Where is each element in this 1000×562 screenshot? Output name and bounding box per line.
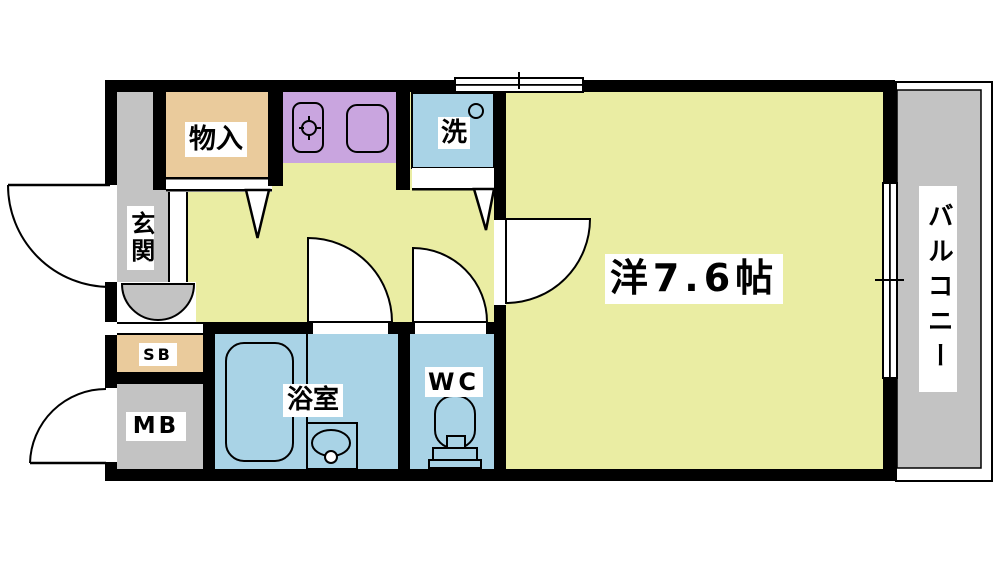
label-storage: 物入 [185, 122, 247, 157]
basin-drain-icon [325, 451, 337, 463]
label-meter-box: MB [126, 412, 186, 441]
label-main-room: 洋7.6帖 [605, 254, 783, 304]
wall [396, 92, 410, 190]
label-shoe-box: SB [139, 343, 177, 366]
wall [153, 92, 166, 190]
meter-box-door-swing [30, 389, 106, 463]
wall [486, 322, 494, 334]
floor-plan-drawing [0, 0, 1000, 562]
front-door-swing [8, 185, 110, 287]
toilet-room [410, 334, 494, 469]
wall [494, 307, 506, 469]
kitchen-counter [283, 92, 396, 163]
wall [494, 92, 506, 218]
wall [203, 334, 215, 469]
wall [388, 322, 415, 334]
wall [117, 372, 203, 384]
label-balcony: バルコニー [919, 186, 957, 392]
toilet-tank-lid [447, 436, 465, 448]
label-laundry: 洗 [438, 117, 470, 149]
window-top [455, 72, 583, 92]
wall [398, 334, 410, 469]
label-entrance: 玄関 [127, 206, 154, 270]
entrance-edge-band [168, 190, 188, 282]
label-toilet: WC [425, 367, 483, 397]
label-bathroom: 浴室 [283, 384, 343, 417]
laundry-door-strip [412, 168, 494, 190]
floor-plan: 玄関 物入 洗 SB MB 浴室 WC 洋7.6帖 バルコニー [0, 0, 1000, 562]
wall [203, 322, 313, 334]
wall [268, 92, 283, 186]
